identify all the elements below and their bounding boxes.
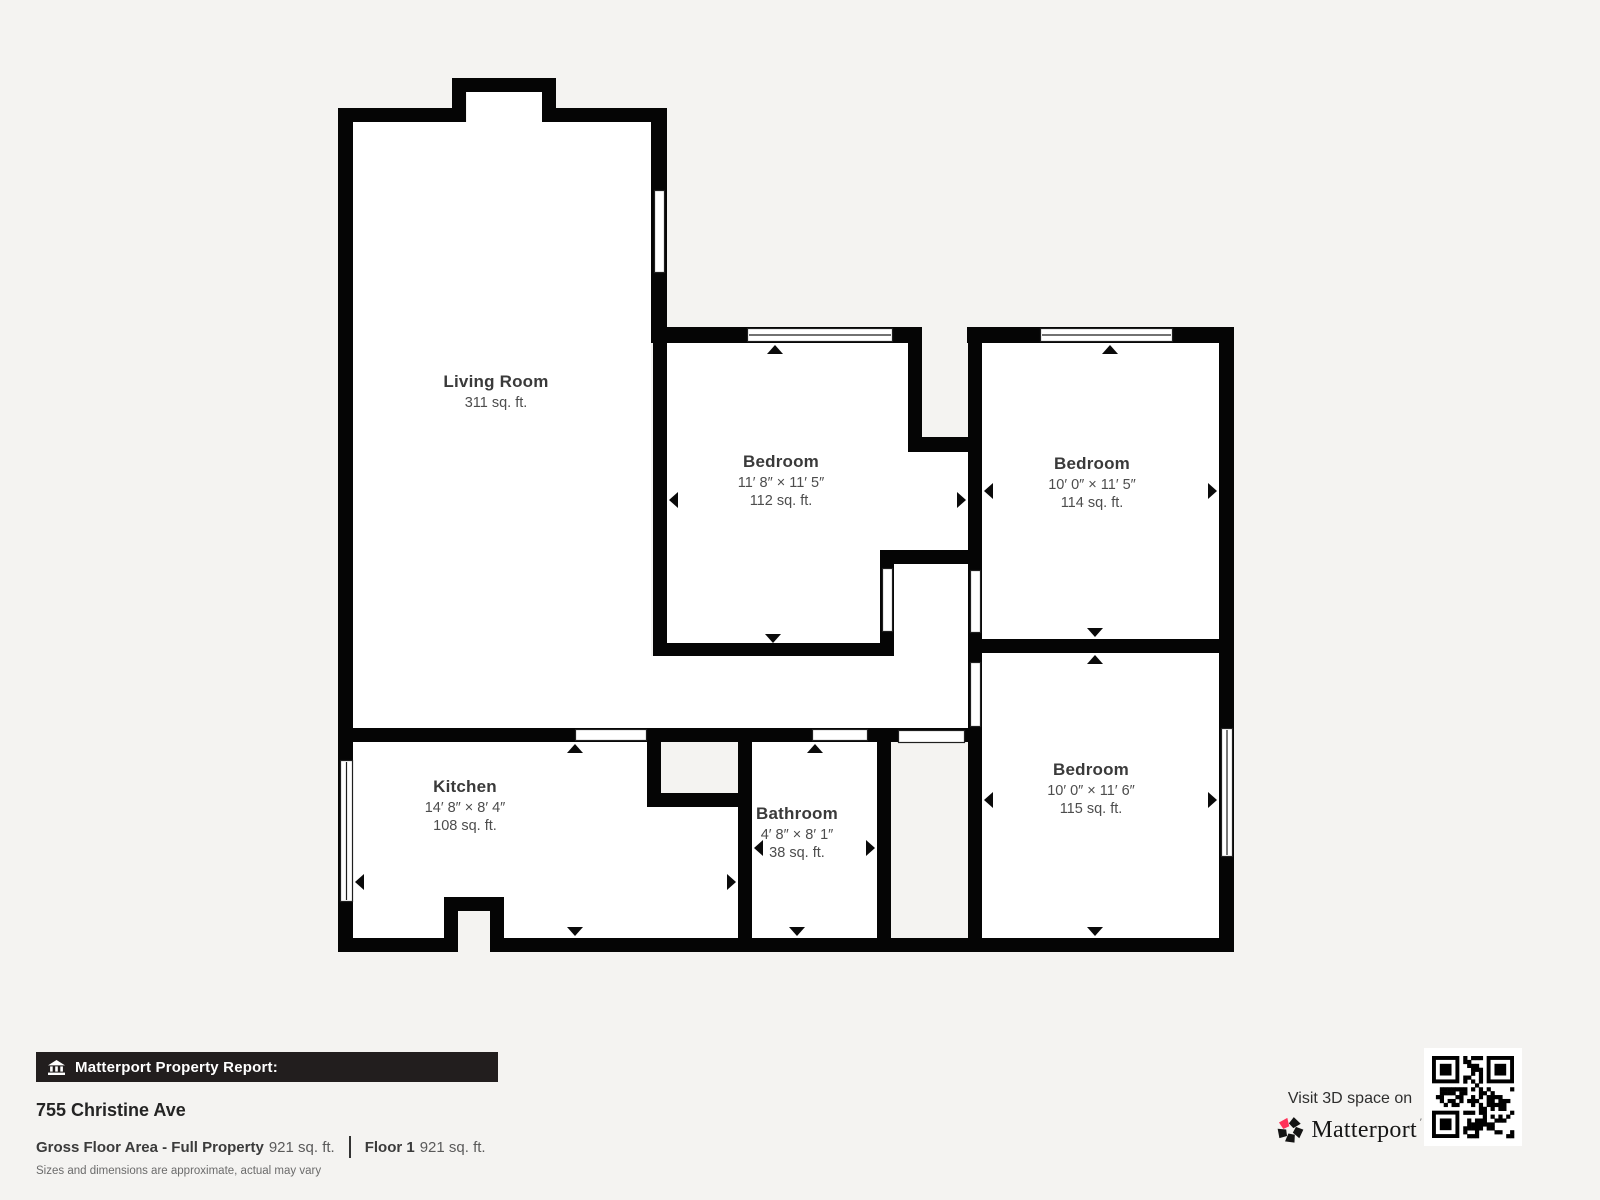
wall (653, 643, 893, 656)
qr-module (1479, 1087, 1483, 1091)
qr-module (1479, 1091, 1483, 1095)
qr-module (1479, 1107, 1483, 1111)
building-icon (48, 1060, 65, 1075)
qr-module (1483, 1115, 1487, 1119)
report-bar-label: Matterport Property Report: (75, 1059, 278, 1076)
qr-module (1475, 1068, 1479, 1072)
qr-module (1463, 1130, 1467, 1134)
floor-label: Floor 1 (365, 1139, 415, 1156)
qr-module (1471, 1103, 1475, 1107)
qr-module (1463, 1079, 1467, 1083)
qr-module (1475, 1083, 1479, 1087)
stats-separator (349, 1136, 351, 1158)
qr-module (1463, 1060, 1467, 1064)
qr-module (1483, 1118, 1487, 1122)
qr-module (1475, 1064, 1479, 1068)
qr-module (1491, 1095, 1495, 1099)
qr-module (1498, 1099, 1502, 1103)
qr-module (1471, 1064, 1475, 1068)
wall (444, 897, 458, 952)
qr-module (1506, 1115, 1510, 1119)
door-opening (899, 731, 965, 743)
wall (877, 742, 891, 952)
qr-module (1467, 1126, 1471, 1130)
qr-module (1475, 1122, 1479, 1126)
qr-module (1471, 1111, 1475, 1115)
qr-module (1491, 1099, 1495, 1103)
qr-module (1498, 1107, 1502, 1111)
door-opening (576, 730, 647, 741)
qr-module (1491, 1126, 1495, 1130)
qr-module (1440, 1091, 1444, 1095)
qr-module (1498, 1095, 1502, 1099)
room-floor (651, 656, 968, 728)
property-address: 755 Christine Ave (36, 1100, 186, 1121)
wall (647, 793, 752, 807)
qr-module (1498, 1103, 1502, 1107)
qr-module (1491, 1115, 1495, 1119)
qr-module (1471, 1095, 1475, 1099)
qr-module (1498, 1115, 1502, 1119)
qr-finder (1440, 1118, 1452, 1130)
trademark-mark: ′ (1420, 1117, 1422, 1127)
qr-module (1459, 1087, 1463, 1091)
room-floor (667, 343, 908, 643)
qr-module (1502, 1099, 1506, 1103)
qr-module (1471, 1068, 1475, 1072)
qr-module (1483, 1091, 1487, 1095)
wall (908, 327, 922, 452)
qr-module (1498, 1118, 1502, 1122)
qr-module (1467, 1064, 1471, 1068)
qr-module (1444, 1103, 1448, 1107)
room-floor (467, 90, 543, 124)
void-area (458, 911, 490, 952)
qr-module (1510, 1134, 1514, 1138)
wall (653, 341, 667, 656)
qr-module (1475, 1099, 1479, 1103)
qr-module (1479, 1122, 1483, 1126)
qr-module (1452, 1091, 1456, 1095)
qr-finder (1440, 1064, 1452, 1076)
qr-module (1494, 1103, 1498, 1107)
qr-module (1479, 1079, 1483, 1083)
qr-module (1440, 1095, 1444, 1099)
qr-module (1487, 1103, 1491, 1107)
qr-module (1459, 1091, 1463, 1095)
door-opening (883, 569, 893, 632)
qr-module (1471, 1122, 1475, 1126)
qr-module (1471, 1099, 1475, 1103)
matterport-pinwheel-icon (1275, 1115, 1305, 1145)
qr-module (1440, 1099, 1444, 1103)
door-opening (971, 663, 981, 727)
qr-module (1506, 1099, 1510, 1103)
qr-module (1510, 1130, 1514, 1134)
qr-module (1459, 1095, 1463, 1099)
floor-value: 921 sq. ft. (420, 1139, 486, 1156)
disclaimer-text: Sizes and dimensions are approximate, ac… (36, 1165, 321, 1177)
qr-module (1487, 1126, 1491, 1130)
qr-module (1487, 1122, 1491, 1126)
qr-module (1463, 1087, 1467, 1091)
qr-module (1471, 1056, 1475, 1060)
qr-module (1471, 1079, 1475, 1083)
wall (490, 897, 504, 952)
qr-module (1479, 1103, 1483, 1107)
floor-plan-canvas (0, 0, 1600, 1200)
qr-module (1463, 1076, 1467, 1080)
qr-module (1448, 1091, 1452, 1095)
qr-module (1479, 1111, 1483, 1115)
qr-module (1448, 1087, 1452, 1091)
qr-module (1475, 1126, 1479, 1130)
qr-module (1479, 1056, 1483, 1060)
qr-module (1487, 1095, 1491, 1099)
visit-3d-space-text: Visit 3D space on (1262, 1090, 1438, 1108)
wall (968, 639, 1234, 653)
qr-module (1479, 1076, 1483, 1080)
qr-module (1483, 1122, 1487, 1126)
report-title-bar: Matterport Property Report: (36, 1052, 498, 1082)
matterport-logo: Matterport′ (1262, 1115, 1438, 1145)
wall (922, 437, 968, 452)
qr-module (1467, 1076, 1471, 1080)
qr-module (1467, 1099, 1471, 1103)
door-opening (971, 571, 981, 633)
qr-module (1479, 1072, 1483, 1076)
wall (880, 550, 982, 564)
qr-module (1463, 1056, 1467, 1060)
door-opening (655, 191, 665, 273)
qr-module (1491, 1091, 1495, 1095)
qr-module (1452, 1099, 1456, 1103)
qr-module (1471, 1072, 1475, 1076)
qr-module (1452, 1103, 1456, 1107)
qr-module (1463, 1091, 1467, 1095)
qr-module (1467, 1111, 1471, 1115)
void-area (661, 742, 738, 793)
qr-module (1459, 1099, 1463, 1103)
room-floor (982, 343, 1219, 639)
wall (542, 78, 556, 122)
qr-module (1440, 1087, 1444, 1091)
qr-module (1475, 1118, 1479, 1122)
qr-module (1502, 1118, 1506, 1122)
room-floor (752, 742, 877, 938)
qr-module (1444, 1087, 1448, 1091)
qr-finder (1494, 1064, 1506, 1076)
gross-floor-area-value: 921 sq. ft. (269, 1139, 335, 1156)
qr-module (1483, 1107, 1487, 1111)
qr-module (1467, 1122, 1471, 1126)
qr-module (1510, 1087, 1514, 1091)
floor-area-stats: Gross Floor Area - Full Property 921 sq.… (36, 1136, 486, 1158)
qr-module (1502, 1103, 1506, 1107)
qr-module (1487, 1087, 1491, 1091)
wall (342, 108, 454, 122)
room-floor (982, 653, 1219, 938)
room-floor (894, 452, 968, 564)
gross-floor-area-label: Gross Floor Area - Full Property (36, 1139, 264, 1156)
matterport-promo: Visit 3D space on Matterport′ (1262, 1090, 1438, 1145)
qr-module (1455, 1087, 1459, 1091)
qr-module (1502, 1107, 1506, 1111)
qr-module (1455, 1095, 1459, 1099)
qr-module (1444, 1091, 1448, 1095)
qr-module (1491, 1103, 1495, 1107)
qr-module (1498, 1130, 1502, 1134)
void-area (891, 744, 968, 938)
wall (452, 78, 466, 122)
room-floor (353, 122, 651, 742)
qr-module (1448, 1099, 1452, 1103)
matterport-wordmark: Matterport (1311, 1117, 1417, 1144)
qr-module (1467, 1134, 1471, 1138)
qr-module (1475, 1056, 1479, 1060)
qr-module (1471, 1126, 1475, 1130)
qr-module (1510, 1111, 1514, 1115)
qr-module (1471, 1087, 1475, 1091)
qr-module (1491, 1122, 1495, 1126)
qr-module (1491, 1107, 1495, 1111)
door-opening (813, 730, 868, 741)
qr-module (1479, 1068, 1483, 1072)
qr-module (1483, 1111, 1487, 1115)
qr-module (1467, 1118, 1471, 1122)
wall (738, 742, 752, 952)
qr-module (1475, 1130, 1479, 1134)
qr-module (1471, 1134, 1475, 1138)
qr-module (1506, 1134, 1510, 1138)
qr-module (1494, 1130, 1498, 1134)
qr-module (1479, 1118, 1483, 1122)
qr-module (1494, 1118, 1498, 1122)
wall (452, 78, 556, 92)
wall (554, 108, 666, 122)
qr-module (1479, 1095, 1483, 1099)
qr-module (1475, 1134, 1479, 1138)
qr-module (1463, 1126, 1467, 1130)
qr-module (1487, 1099, 1491, 1103)
qr-module (1467, 1060, 1471, 1064)
qr-module (1463, 1111, 1467, 1115)
qr-module (1479, 1126, 1483, 1130)
qr-module (1452, 1087, 1456, 1091)
qr-module (1455, 1103, 1459, 1107)
qr-module (1494, 1095, 1498, 1099)
